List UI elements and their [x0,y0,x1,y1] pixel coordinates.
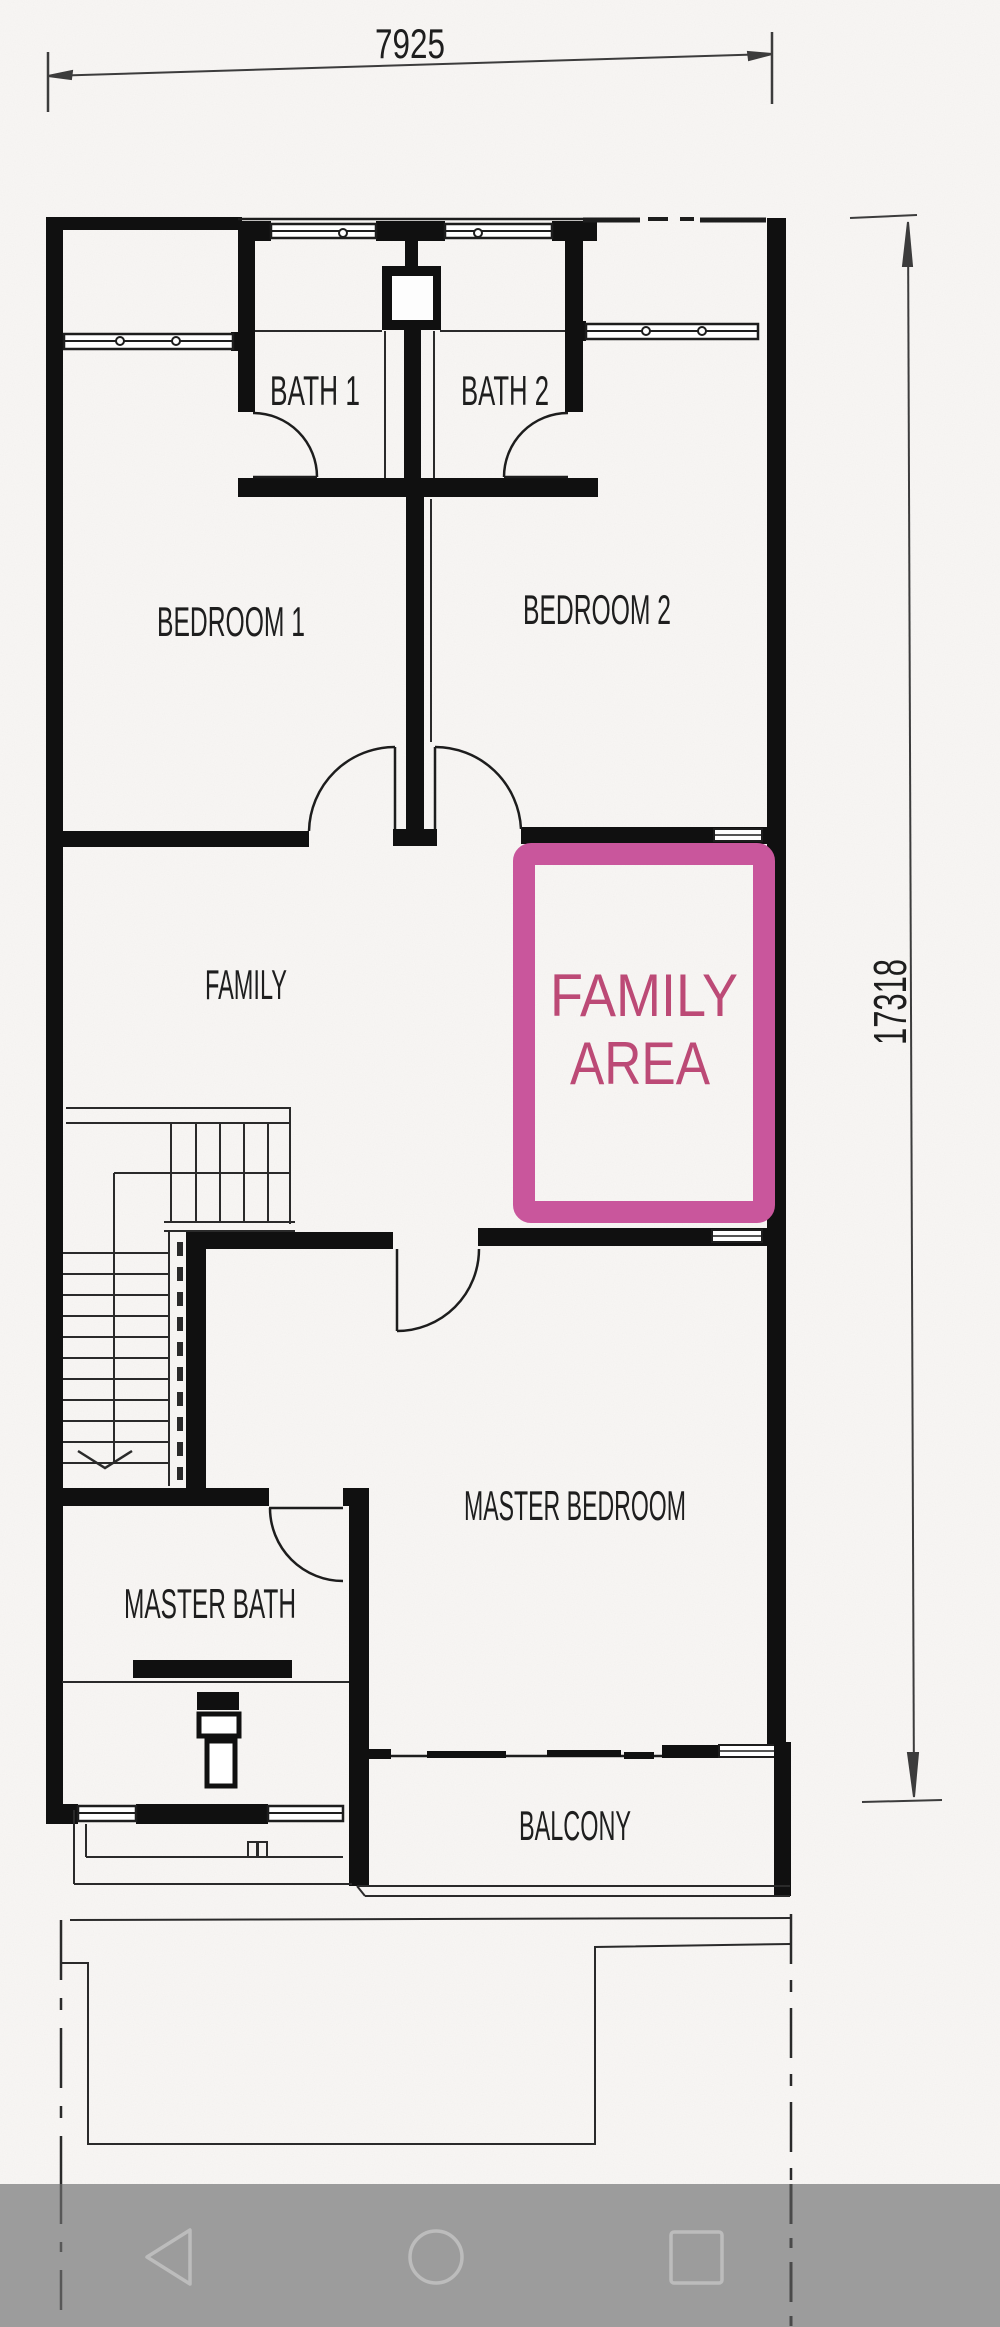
svg-text:MASTER BATH: MASTER BATH [124,1580,296,1627]
svg-text:AREA: AREA [570,1030,710,1097]
svg-text:BATH 1: BATH 1 [270,367,360,414]
svg-text:FAMILY: FAMILY [205,961,287,1008]
svg-text:FAMILY: FAMILY [550,962,738,1029]
svg-text:BEDROOM 1: BEDROOM 1 [157,598,305,645]
svg-text:17318: 17318 [864,959,916,1045]
svg-text:BALCONY: BALCONY [519,1802,631,1849]
svg-text:BATH 2: BATH 2 [461,367,549,414]
svg-text:BEDROOM 2: BEDROOM 2 [523,586,671,633]
svg-text:MASTER BEDROOM: MASTER BEDROOM [464,1482,686,1529]
svg-text:7925: 7925 [375,20,445,67]
